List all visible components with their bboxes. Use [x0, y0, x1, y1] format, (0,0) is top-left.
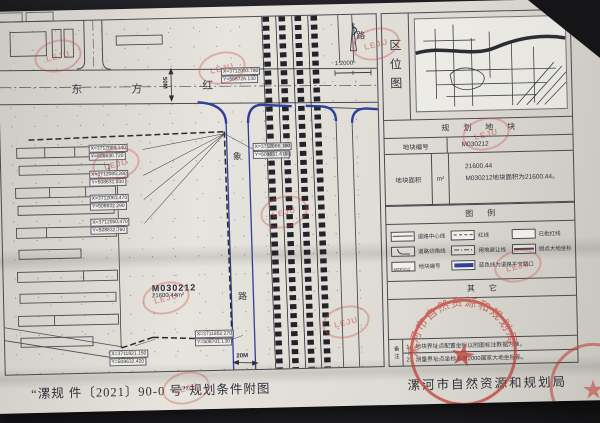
- road-name-char: 红: [202, 77, 213, 93]
- redline-symbol: [451, 230, 475, 241]
- legend-item-redline: 红线: [450, 226, 511, 242]
- plot-area-note: M030212地块面积为21600.44。: [465, 171, 558, 185]
- legend-item-blue-road: 蓝色线为道路平交路口: [451, 255, 571, 273]
- notes-label: 备注: [389, 340, 404, 366]
- plot-id: M030212: [152, 282, 197, 293]
- scale-label: 1:2000: [335, 61, 353, 67]
- setback-line-symbol: [451, 245, 475, 256]
- plot-boundary: [28, 132, 232, 350]
- legend-item-plot-number: M030212 地块编号: [390, 258, 451, 274]
- location-section: 区位图: [382, 10, 572, 120]
- legend: 道路中心线 红线 已批红线 道路切角线 用地退让线 拐点大地坐标: [386, 221, 575, 281]
- info-panel: 区位图 规划地块 地块编号 M030212: [381, 9, 579, 367]
- centerline-symbol: [391, 231, 415, 242]
- legend-item-corner-cut: 道路切角线: [390, 243, 451, 259]
- road-name-char: 东: [71, 81, 82, 97]
- location-title: 区位图: [382, 13, 411, 120]
- legend-item-approved-redline: 已批红线: [510, 225, 571, 241]
- road-width-label: 50M: [161, 77, 167, 89]
- blue-road-symbol: [452, 260, 476, 271]
- paper-sheet: 东 方 红 路 象 路 50M 20M 1:2000 M030212 21600…: [0, 0, 600, 414]
- coordinate-callout: X=3712085.280Y=508631.030: [89, 170, 129, 187]
- location-map: [409, 10, 573, 120]
- legend-item-coord-point: 拐点大地坐标: [511, 240, 572, 256]
- coordinate-callout: X=3712089.140Y=508630.720: [89, 144, 129, 161]
- plot-label: M030212 21600.44m²: [152, 282, 197, 299]
- sheet-title: “漯规 件〔2021〕90-0 号”规划条件附图: [31, 378, 271, 402]
- plot-number-symbol: M030212: [391, 261, 415, 272]
- road-name-char: 象: [233, 149, 242, 162]
- plot-area-unit: m²: [432, 154, 450, 204]
- coordinate-callout: X=3712086.160Y=508631.410: [253, 142, 293, 159]
- dimension-arrows: [169, 67, 258, 367]
- other-section-body: [388, 296, 577, 340]
- plot-area-label: 地块面积: [385, 154, 433, 205]
- plot-number-value: M030212: [447, 137, 488, 153]
- corner-cut-symbol: [391, 246, 415, 257]
- road-name-char: 路: [238, 289, 247, 302]
- existing-buildings: [10, 27, 169, 347]
- legend-item-setback: 用地退让线: [450, 241, 511, 257]
- title-row: “漯规 件〔2021〕90-0 号”规划条件附图 漯河市自然资源和规划局: [0, 370, 600, 403]
- coordinate-callout: X=3712050.470Y=508632.760: [90, 218, 130, 235]
- photo-of-planning-sheet: 东 方 红 路 象 路 50M 20M 1:2000 M030212 21600…: [0, 0, 600, 423]
- notes-section: 备注 1、地块界址点配置坐标以附图标注数据为准。 2、测量界址点坐标采用2000…: [389, 336, 578, 366]
- plot-number-label: 地块编号: [385, 138, 448, 154]
- coordinate-callout: X=3712061.470Y=508632.290: [90, 194, 130, 211]
- road-name-char: 路: [356, 28, 365, 41]
- road-name-char: 方: [131, 81, 142, 97]
- plot-area-row: 地块面积 m² 21600.44 M030212地块面积为21600.44。: [385, 151, 574, 206]
- coord-point-symbol: [512, 243, 536, 254]
- agency-name: 漯河市自然资源和规划局: [407, 371, 567, 394]
- leader-lines: [129, 73, 257, 346]
- coordinate-callout: X=3711821.150Y=508632.420: [109, 349, 148, 366]
- road-width-label: 20M: [236, 353, 248, 359]
- note-line: 2、测量界址点坐标采用2000国家大地坐标系。: [403, 348, 577, 365]
- plot-area: 21600.44m²: [152, 292, 197, 299]
- legend-item-centerline: 道路中心线: [390, 228, 451, 244]
- map-linework: [0, 14, 384, 374]
- coordinate-callout: X=3711852.270Y=508701.130: [195, 330, 234, 347]
- coordinate-callout: X=3712093.780Y=508726.130: [221, 67, 261, 84]
- plot-area-value-cell: 21600.44 M030212地块面积为21600.44。: [449, 151, 559, 203]
- approved-redline-symbol: [511, 228, 535, 239]
- plan-map: 东 方 红 路 象 路 50M 20M 1:2000 M030212 21600…: [0, 13, 385, 376]
- road-edges: [0, 14, 384, 374]
